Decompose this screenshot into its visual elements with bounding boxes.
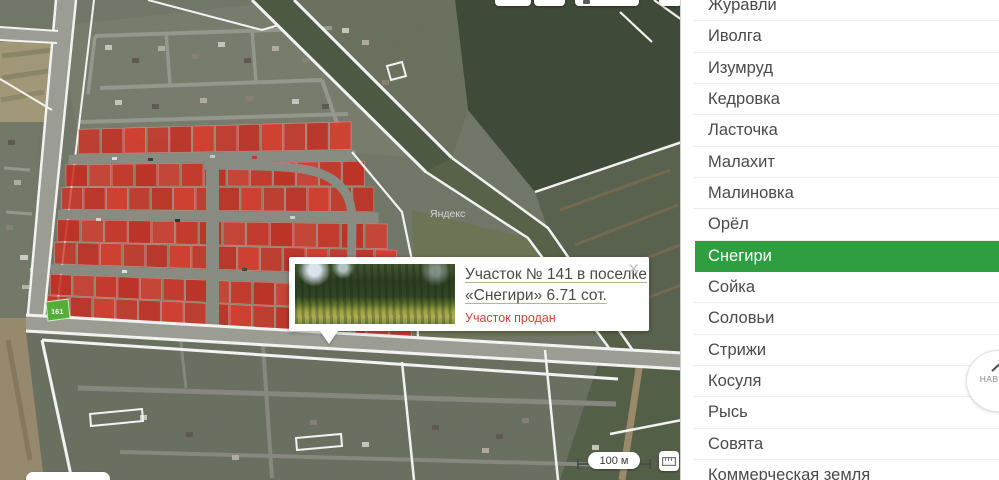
scale-tick-left: [577, 459, 579, 469]
settlement-item-13[interactable]: Косуля: [681, 366, 999, 397]
plot-status: Участок продан: [465, 311, 657, 325]
land-plots-map-page: 161 Яндекс 100 м: [0, 0, 999, 480]
plot-photo[interactable]: [295, 264, 455, 324]
settlement-item-15[interactable]: Совята: [681, 429, 999, 460]
yandex-watermark: Яндекс: [430, 208, 465, 220]
map-canvas[interactable]: 161 Яндекс: [0, 0, 682, 480]
scale-tick-right: [649, 459, 651, 469]
map-control-button-4[interactable]: [659, 0, 682, 6]
settlement-item-11[interactable]: Соловьи: [681, 303, 999, 334]
available-plot[interactable]: 161: [46, 299, 70, 321]
chevron-up-icon: [991, 364, 999, 372]
back-to-top-label: НАВЕРХ: [980, 374, 999, 384]
settlement-item-7[interactable]: Малиновка: [681, 178, 999, 209]
settlement-item-2[interactable]: Иволга: [681, 21, 999, 52]
settlement-item-8[interactable]: Орёл: [681, 209, 999, 240]
plot-info-popup: Участок № 141 в поселке «Снегири» 6.71 с…: [289, 257, 649, 331]
settlement-item-9-selected[interactable]: Снегири: [695, 241, 999, 272]
settlement-item-4[interactable]: Кедровка: [681, 84, 999, 115]
settlement-item-10[interactable]: Сойка: [681, 272, 999, 303]
plot-title-link[interactable]: Участок № 141 в поселке «Снегири» 6.71 с…: [465, 266, 647, 304]
settlements-sidebar: ЖуравлиИволгаИзумрудКедровкаЛасточкаМала…: [680, 0, 999, 480]
map-control-button-3[interactable]: [575, 0, 639, 6]
scale-label: 100 м: [588, 452, 640, 469]
settlement-item-14[interactable]: Рысь: [681, 397, 999, 428]
settlement-item-1[interactable]: Журавли: [681, 0, 999, 21]
map-area: 161 Яндекс 100 м: [0, 0, 682, 480]
settlement-item-6[interactable]: Малахит: [681, 147, 999, 178]
settlement-item-5[interactable]: Ласточка: [681, 115, 999, 146]
ruler-button[interactable]: [659, 451, 679, 471]
available-plot-label: 161: [51, 307, 64, 316]
map-control-button-1[interactable]: [495, 0, 531, 6]
map-copyright-pill: [26, 472, 110, 480]
settlement-item-3[interactable]: Изумруд: [681, 53, 999, 84]
settlement-item-16[interactable]: Коммерческая земля: [681, 460, 999, 480]
map-control-button-2[interactable]: [534, 0, 565, 6]
close-icon[interactable]: ✕: [627, 262, 640, 277]
settlement-item-12[interactable]: Стрижи: [681, 335, 999, 366]
map-control-glyph: [583, 0, 590, 4]
ruler-icon: [662, 457, 676, 466]
settlement-list: ЖуравлиИволгаИзумрудКедровкаЛасточкаМала…: [681, 0, 999, 480]
popup-arrow: [320, 331, 338, 344]
